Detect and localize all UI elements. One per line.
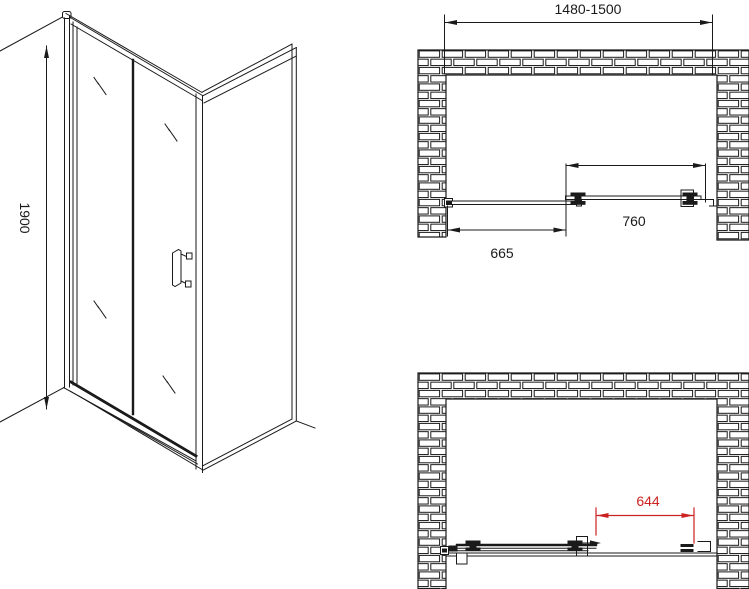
- fixed-panel-plan: [452, 201, 581, 205]
- sliding-door-dimension-label: 760: [622, 213, 646, 229]
- height-dimension-label: 1900: [17, 202, 33, 233]
- shower-door-installation-diagram: 1900: [0, 0, 749, 589]
- bottom-guide-bracket: [457, 553, 468, 564]
- handle-plan: [449, 546, 458, 552]
- fixed-panel-dimension-label: 665: [490, 245, 514, 261]
- opening-dimension-label: 644: [636, 493, 660, 509]
- wall-profile-bracket: [446, 201, 451, 206]
- overall-width-dimension-label: 1480-1500: [555, 1, 622, 17]
- technical-drawing-canvas: 1900: [0, 0, 749, 589]
- wall-profile-bracket: [442, 549, 447, 553]
